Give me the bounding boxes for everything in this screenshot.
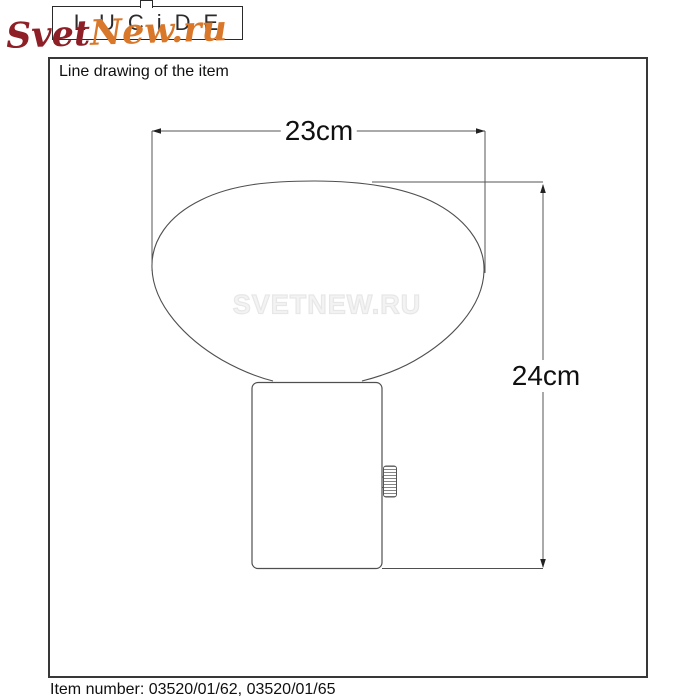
lamp-switch-knob [384, 466, 397, 497]
width-arrow-right [476, 128, 485, 134]
center-watermark: SVETNEW.RU [233, 290, 422, 321]
lamp-shade-outline [152, 181, 484, 381]
height-dimension-label: 24cm [508, 360, 584, 392]
lamp-base-outline [252, 383, 382, 569]
height-arrow-bottom [540, 559, 546, 568]
shop-watermark-part1: Svet [5, 13, 90, 57]
width-dimension-label: 23cm [281, 115, 357, 147]
shop-watermark-part2: New.ru [89, 8, 227, 54]
lamp-line-drawing [0, 0, 700, 700]
height-arrow-top [540, 184, 546, 193]
shop-watermark-script: SvetNew.ru [5, 8, 227, 57]
width-arrow-left [152, 128, 161, 134]
